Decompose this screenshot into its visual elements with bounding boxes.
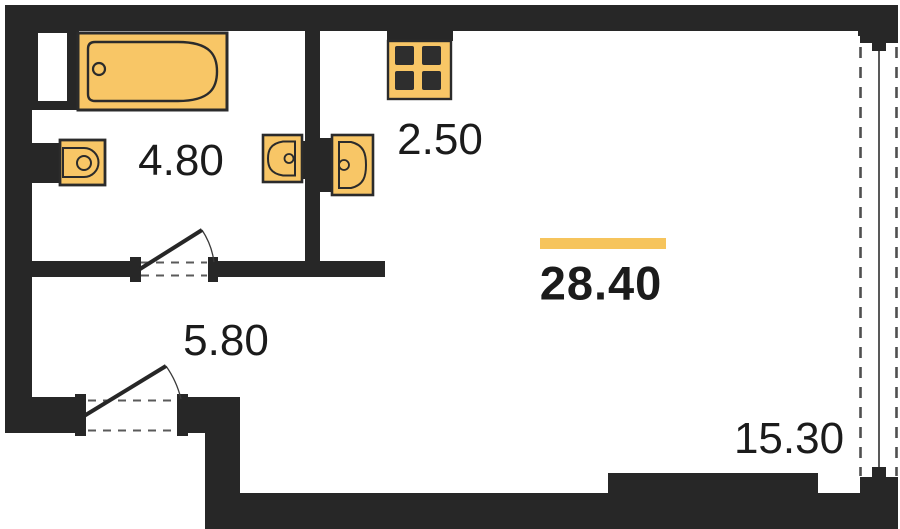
wall-left: [5, 5, 32, 433]
room-area-label-living: 28.40: [540, 260, 663, 307]
room-area-label-window-zone: 15.30: [734, 417, 844, 461]
living-area-accent-bar: [540, 238, 666, 249]
washbasin-icon-left: [263, 135, 306, 182]
stove-icon: [387, 31, 453, 99]
toilet-tank: [32, 143, 60, 183]
wall-bottom: [240, 493, 898, 529]
wall-bathroom-bottom-left: [5, 261, 140, 277]
room-area-label-kitchen: 2.50: [397, 118, 483, 162]
door-jamb: [208, 257, 218, 282]
stove-burner: [395, 46, 414, 65]
door-jamb: [130, 257, 141, 282]
washbasin-mount: [320, 138, 332, 192]
stove-burner: [422, 46, 441, 65]
door-leaf: [84, 366, 166, 416]
door-swing-icon-bathroom: [140, 230, 214, 276]
door-swing-icon-hall: [84, 366, 181, 431]
glazing-bracket-top-square: [872, 43, 886, 51]
wall-lower-vertical: [205, 433, 240, 529]
wall-bottom-step: [608, 473, 818, 495]
wall-top: [5, 5, 898, 31]
glazing-bracket-bottom-bar: [860, 477, 898, 493]
stove-wall-bar: [387, 31, 453, 41]
door-jamb: [177, 394, 188, 436]
glazing-bracket-bottom-square: [872, 467, 886, 477]
room-area-label-hall: 5.80: [183, 319, 269, 363]
bathtub-icon: [78, 33, 227, 110]
wall-divider: [305, 31, 320, 266]
wall-hall-bottom-left: [5, 397, 75, 433]
glazing-bracket-top-bar: [860, 36, 898, 43]
washbasin-icon-right: [320, 135, 373, 195]
bathtub-outer: [78, 33, 227, 110]
stove-burner: [422, 71, 441, 90]
stove-burner: [395, 71, 414, 90]
room-area-label-bathroom: 4.80: [138, 139, 224, 183]
wall-bathroom-bottom-right: [208, 261, 385, 277]
balcony-glazing-icon: [861, 47, 897, 476]
toilet-icon: [32, 140, 105, 185]
floor-plan: 4.80 2.50 5.80 28.40 15.30: [0, 0, 900, 529]
shaft-duct-hole: [38, 33, 67, 101]
wall-top-right-block: [858, 5, 898, 36]
wall-hall-bottom-right: [188, 397, 240, 433]
